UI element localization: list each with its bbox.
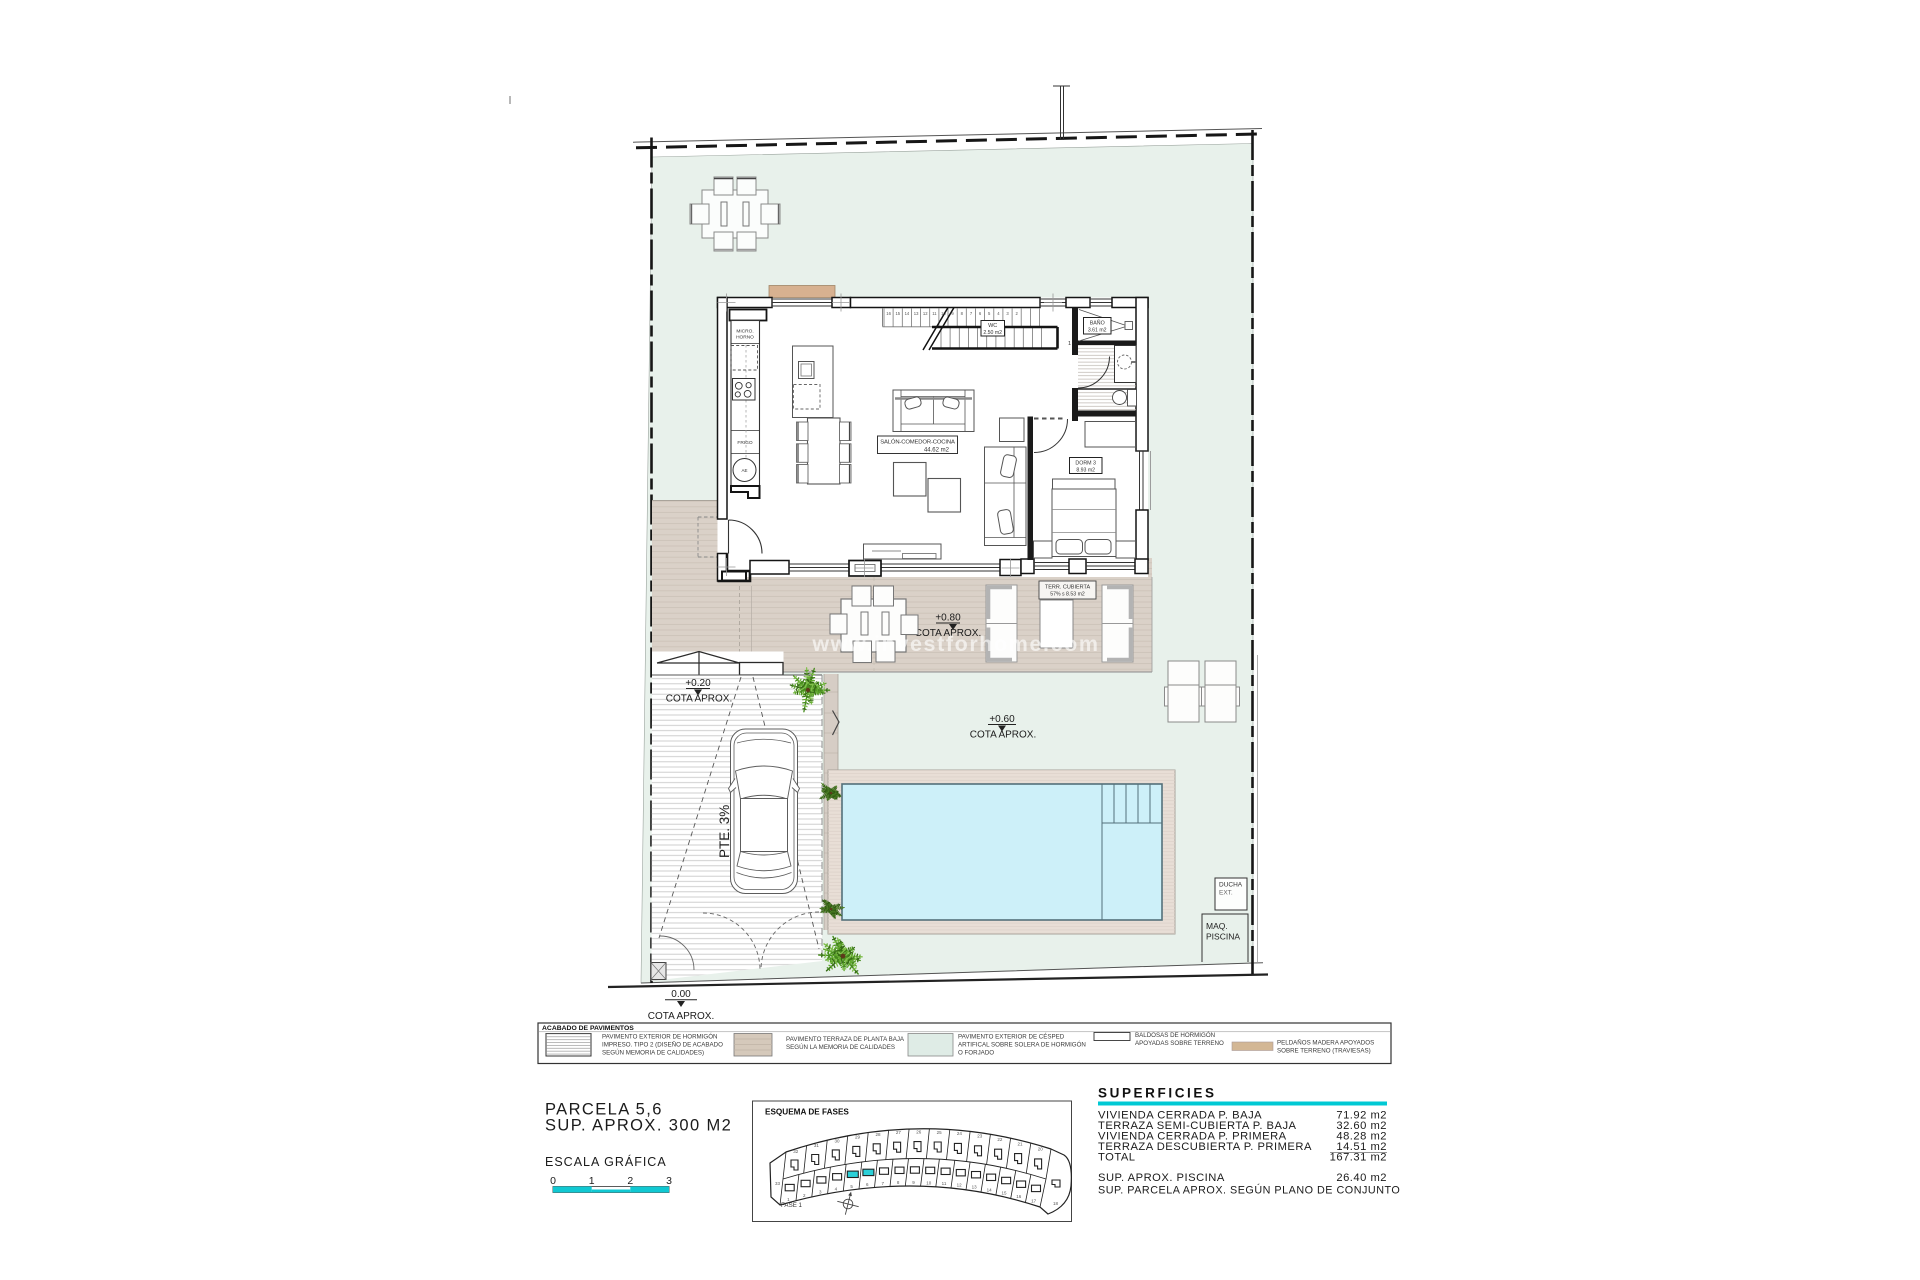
svg-text:20: 20 — [1038, 1147, 1044, 1152]
svg-text:PAVIMENTO EXTERIOR DE HORMIGÓN: PAVIMENTO EXTERIOR DE HORMIGÓN — [602, 1034, 718, 1041]
svg-text:3: 3 — [666, 1175, 672, 1187]
svg-text:11: 11 — [932, 311, 937, 316]
svg-text:3.61 m2: 3.61 m2 — [1088, 328, 1107, 334]
svg-text:SALÓN-COMEDOR-COCINA: SALÓN-COMEDOR-COCINA — [880, 439, 955, 446]
svg-text:26.40 m2: 26.40 m2 — [1336, 1172, 1387, 1184]
svg-text:SOBRE TERRENO (TRAVIESAS): SOBRE TERRENO (TRAVIESAS) — [1277, 1048, 1371, 1055]
svg-text:PAVIMENTO EXTERIOR DE CÉSPED: PAVIMENTO EXTERIOR DE CÉSPED — [958, 1034, 1065, 1041]
svg-text:PAVIMENTO TERRAZA DE PLANTA BA: PAVIMENTO TERRAZA DE PLANTA BAJA — [786, 1036, 905, 1043]
svg-text:ESCALA GRÁFICA: ESCALA GRÁFICA — [545, 1154, 667, 1169]
svg-text:31: 31 — [814, 1143, 820, 1148]
svg-text:ARTIFICAL SOBRE SOLERA DE HORM: ARTIFICAL SOBRE SOLERA DE HORMIGÓN — [958, 1042, 1086, 1049]
svg-text:12: 12 — [923, 311, 928, 316]
svg-text:0: 0 — [550, 1175, 556, 1187]
svg-text:BAÑO: BAÑO — [1090, 320, 1105, 327]
svg-text:12: 12 — [957, 1183, 963, 1188]
svg-text:2.50 m2: 2.50 m2 — [983, 330, 1002, 336]
svg-text:21: 21 — [1017, 1141, 1023, 1146]
svg-text:EXT.: EXT. — [1219, 890, 1233, 897]
svg-text:15: 15 — [895, 311, 900, 316]
svg-text:COTA APROX.: COTA APROX. — [648, 1011, 715, 1022]
svg-text:10: 10 — [941, 311, 946, 316]
svg-text:2: 2 — [627, 1175, 633, 1187]
svg-text:COTA APROX.: COTA APROX. — [970, 730, 1037, 741]
svg-text:AE: AE — [741, 468, 747, 473]
svg-text:IMPRESO. TIPO 2 (DISEÑO DE ACA: IMPRESO. TIPO 2 (DISEÑO DE ACABADO — [602, 1042, 723, 1049]
svg-text:26: 26 — [916, 1130, 922, 1135]
svg-text:33: 33 — [775, 1181, 781, 1186]
svg-text:MICRO.: MICRO. — [736, 329, 753, 335]
svg-text:www.investforhome.com: www.investforhome.com — [811, 632, 1099, 656]
svg-text:32: 32 — [793, 1149, 799, 1154]
svg-text:13: 13 — [972, 1185, 978, 1190]
svg-text:COTA APROX.: COTA APROX. — [666, 694, 733, 705]
svg-text:23: 23 — [977, 1134, 983, 1139]
svg-text:+0.20: +0.20 — [685, 678, 711, 689]
svg-text:8.93 m2: 8.93 m2 — [1076, 468, 1095, 474]
svg-text:SEGÚN MEMORIA DE CALIDADES): SEGÚN MEMORIA DE CALIDADES) — [602, 1050, 704, 1057]
svg-text:16: 16 — [886, 311, 891, 316]
svg-text:DUCHA: DUCHA — [1219, 882, 1243, 889]
svg-text:BALDOSAS DE HORMIGÓN: BALDOSAS DE HORMIGÓN — [1135, 1032, 1215, 1039]
svg-text:HORNO: HORNO — [736, 335, 754, 341]
svg-text:DORM 3: DORM 3 — [1075, 461, 1096, 467]
svg-text:44.62 m2: 44.62 m2 — [924, 448, 950, 454]
svg-text:SUP. APROX. 300 M2: SUP. APROX. 300 M2 — [545, 1117, 732, 1135]
svg-text:SUP. PARCELA APROX. SEGÚN PLAN: SUP. PARCELA APROX. SEGÚN PLANO DE CONJU… — [1098, 1184, 1400, 1197]
svg-text:TOTAL: TOTAL — [1098, 1152, 1136, 1164]
svg-text:57% s 8.53 m2: 57% s 8.53 m2 — [1050, 592, 1085, 598]
svg-text:15: 15 — [1001, 1191, 1007, 1196]
svg-text:22: 22 — [997, 1137, 1003, 1142]
svg-text:18: 18 — [1053, 1201, 1059, 1206]
svg-text:30: 30 — [834, 1138, 840, 1143]
svg-text:TERR. CUBIERTA: TERR. CUBIERTA — [1045, 585, 1091, 591]
svg-text:O FORJADO: O FORJADO — [958, 1050, 994, 1057]
svg-text:ACABADO DE PAVIMENTOS: ACABADO DE PAVIMENTOS — [542, 1025, 634, 1032]
svg-text:24: 24 — [957, 1131, 963, 1136]
svg-text:28: 28 — [875, 1132, 881, 1137]
svg-text:25: 25 — [937, 1130, 943, 1135]
svg-text:SUP. APROX. PISCINA: SUP. APROX. PISCINA — [1098, 1172, 1225, 1184]
svg-text:SEGÚN LA MEMORIA DE CALIDADES: SEGÚN LA MEMORIA DE CALIDADES — [786, 1044, 895, 1051]
svg-text:MAQ.: MAQ. — [1206, 921, 1228, 931]
svg-text:167.31 m2: 167.31 m2 — [1330, 1152, 1387, 1164]
svg-text:10: 10 — [926, 1180, 932, 1185]
svg-text:29: 29 — [855, 1135, 861, 1140]
svg-text:11: 11 — [942, 1181, 947, 1186]
svg-text:APOYADAS SOBRE TERRENO: APOYADAS SOBRE TERRENO — [1135, 1040, 1224, 1047]
svg-text:+0.80: +0.80 — [935, 613, 961, 624]
svg-text:SUPERFICIES: SUPERFICIES — [1098, 1086, 1217, 1101]
svg-text:27: 27 — [896, 1130, 902, 1135]
svg-text:ESQUEMA DE FASES: ESQUEMA DE FASES — [765, 1108, 849, 1117]
svg-text:17: 17 — [1031, 1199, 1037, 1204]
svg-text:1: 1 — [589, 1175, 595, 1187]
svg-text:FASE 1: FASE 1 — [781, 1202, 803, 1209]
svg-text:PTE. 3%: PTE. 3% — [717, 805, 732, 858]
svg-text:PELDAÑOS MADERA APOYADOS: PELDAÑOS MADERA APOYADOS — [1277, 1040, 1374, 1047]
svg-text:1: 1 — [1068, 341, 1071, 347]
svg-text:WC: WC — [988, 323, 997, 329]
svg-text:13: 13 — [914, 311, 919, 316]
svg-text:16: 16 — [1016, 1194, 1022, 1199]
svg-text:0.00: 0.00 — [671, 989, 691, 1000]
svg-text:+0.60: +0.60 — [989, 714, 1015, 725]
svg-text:PISCINA: PISCINA — [1206, 932, 1240, 942]
svg-text:14: 14 — [987, 1187, 993, 1192]
svg-text:14: 14 — [905, 311, 910, 316]
svg-text:FRIGO: FRIGO — [737, 440, 752, 446]
